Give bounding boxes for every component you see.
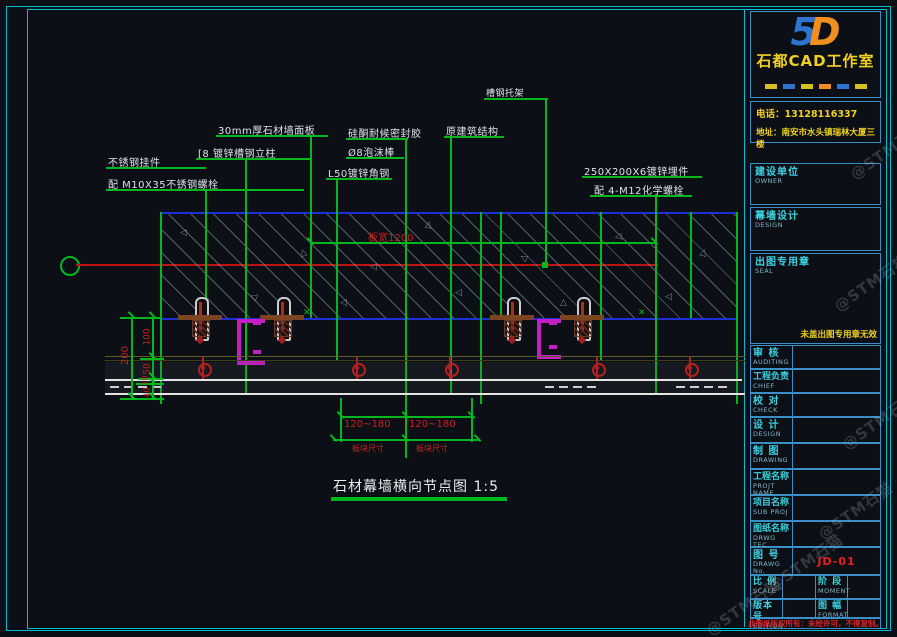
wall-dash [573, 386, 582, 388]
wall-edge-line [105, 393, 745, 395]
wall-dash [587, 386, 596, 388]
leader-line [545, 99, 547, 266]
leader-underline [106, 189, 304, 191]
c-channel-lip [253, 350, 261, 354]
span-dim-left: 120~180 [344, 419, 391, 430]
titleblock-row-drawer: 制 图DRAWING [750, 443, 881, 469]
leader-end-dot [542, 262, 548, 268]
copyright-strip: 此图纸版权所有：未经许可，不得复制。 [750, 618, 881, 629]
leader-underline [484, 98, 548, 100]
hatch-triangle-icon: ◁ [455, 288, 462, 298]
anchor-dot [448, 366, 452, 370]
anchor-bolt-icon [352, 363, 366, 377]
titleblock-row-check: 校 对CHECK [750, 393, 881, 417]
angle-steel-line [105, 356, 745, 357]
leader-underline [346, 157, 404, 159]
vdim-seg1: 100 [143, 328, 153, 345]
studio-name: 石都CAD工作室 [751, 50, 880, 71]
wall-dash [559, 386, 568, 388]
dim-extension-line [120, 398, 164, 400]
panel-joint-line [600, 212, 602, 360]
tag-bar [855, 84, 867, 89]
studio-logo: 5D [751, 10, 880, 54]
anchor-bolt-icon [592, 363, 606, 377]
row-value-field [783, 600, 816, 617]
anchor-bolt-icon [445, 363, 459, 377]
row-value-field [793, 394, 880, 416]
stamp-box-design: 幕墙设计 DESIGN [750, 207, 881, 251]
datum-circle-icon [60, 256, 80, 276]
wall-dash [676, 386, 685, 388]
tag-bar [819, 84, 831, 89]
leader-underline [326, 178, 392, 180]
wall-dash [704, 386, 713, 388]
tag-bar [765, 84, 777, 89]
anchor-bolt-icon [198, 363, 212, 377]
pin-collar [192, 320, 210, 337]
c-channel-lip [253, 321, 261, 325]
row-value-field [848, 600, 880, 617]
c-channel-lip [549, 345, 557, 349]
leader-underline [444, 136, 504, 138]
wall-dash [545, 386, 554, 388]
dim-extension-line [340, 398, 342, 442]
leader-line [336, 179, 338, 361]
titleblock-row-edition-format: 版本号EDITION 图 幅FORMAT [750, 599, 881, 618]
row-label: 项目名称SUB PROJ [751, 496, 793, 520]
pin-collar [504, 320, 522, 337]
leader-line [310, 136, 312, 318]
leader-line [405, 139, 407, 458]
titleblock-row-audit: 审 核AUDITING [750, 345, 881, 369]
contact-box: 电话：13128116337 地址：南安市水头镇瑞林大厦三楼 [750, 101, 881, 143]
phone-label: 电话：13128116337 [756, 106, 875, 120]
leader-underline [346, 138, 408, 140]
row-label: 工程名称PROJT NAME [751, 470, 793, 494]
vdim-seg3: 10 [141, 375, 150, 385]
anchor-dot [688, 366, 692, 370]
leader-underline [196, 158, 312, 160]
row-label: 制 图DRAWING [751, 444, 793, 468]
hatch-triangle-icon: ◁ [665, 292, 672, 302]
stamp-label: 出图专用章 [755, 257, 876, 268]
hatch-triangle-icon: ◁ [340, 298, 347, 308]
wall-dash [110, 386, 119, 388]
titleblock-divider [744, 9, 745, 627]
dimension-line [310, 242, 656, 244]
studio-tagline-bars [751, 74, 880, 93]
row-label: 图 幅FORMAT [816, 600, 848, 617]
angle-steel-line [105, 360, 745, 361]
logo-glyph-d: D [809, 10, 841, 54]
panel-width-dim: 板宽1200 [368, 229, 413, 244]
stamp-sublabel: SEAL [755, 268, 876, 275]
title-underline [331, 497, 507, 501]
vdim-total: 200 [120, 346, 131, 365]
hatch-triangle-icon: ◁ [370, 262, 377, 272]
row-value-field [793, 444, 880, 468]
leader-underline [582, 176, 702, 178]
copyright-note: 此图纸版权所有：未经许可，不得复制。 [748, 618, 883, 629]
c-channel-icon [237, 319, 265, 365]
stamp-sublabel: DESIGN [755, 222, 876, 229]
wall-dash [718, 386, 727, 388]
dimension-line [131, 317, 133, 399]
hatch-triangle-icon: ◁ [614, 231, 623, 242]
span-note-left: 板块尺寸 [352, 443, 384, 454]
vdim-seg2: 50 [143, 363, 153, 374]
row-label: 图纸名称DRWG TEC [751, 522, 793, 546]
row-label: 工程负责CHIEF [751, 370, 793, 392]
anchor-bolt-icon [685, 363, 699, 377]
tag-bar [783, 84, 795, 89]
anchor-dot [201, 366, 205, 370]
row-value-field [793, 370, 880, 392]
titleblock-row-chief: 工程负责CHIEF [750, 369, 881, 393]
weld-mark-icon: ✕ [638, 308, 646, 318]
hatch-triangle-icon: ◁ [180, 228, 187, 238]
tag-bar [837, 84, 849, 89]
panel-joint-line [690, 212, 692, 318]
pin-collar [274, 320, 292, 337]
row-label: 设 计DESIGN [751, 418, 793, 442]
row-label: 审 核AUDITING [751, 346, 793, 368]
row-value-field [793, 346, 880, 368]
cad-sheet: ◁ ◁ △ ◁ △ ◁ ◁ △ ◁ ◁ △ ◁ ✕ ✕ 板宽1200 [0, 0, 897, 637]
leader-underline [590, 195, 692, 197]
drawing-title: 石材幕墙横向节点图 1:5 [333, 476, 499, 496]
hatch-triangle-icon: △ [560, 298, 567, 308]
anchor-dot [595, 366, 599, 370]
row-value-field [848, 576, 880, 598]
leader-underline [106, 167, 206, 169]
anchor-dot [355, 366, 359, 370]
c-channel-icon [537, 319, 561, 359]
logo-box: 5D 石都CAD工作室 [750, 11, 881, 98]
wall-dash [690, 386, 699, 388]
vdim-seg4: 40 [143, 387, 152, 397]
wall-edge-line [105, 379, 742, 381]
row-label: 校 对CHECK [751, 394, 793, 416]
seal-note: 未盖出图专用章无效 [800, 328, 877, 340]
pin-collar [574, 320, 592, 337]
c-channel-lip [549, 321, 557, 325]
titleblock-row-project-name: 工程名称PROJT NAME [750, 469, 881, 495]
span-dim-right: 120~180 [409, 419, 456, 430]
row-label: 阶 段MOMENT [816, 576, 848, 598]
span-note-right: 板块尺寸 [416, 443, 448, 454]
panel-joint-line [500, 212, 502, 318]
address-label: 地址：南安市水头镇瑞林大厦三楼 [756, 126, 875, 150]
tag-bar [801, 84, 813, 89]
leader-underline [216, 135, 328, 137]
